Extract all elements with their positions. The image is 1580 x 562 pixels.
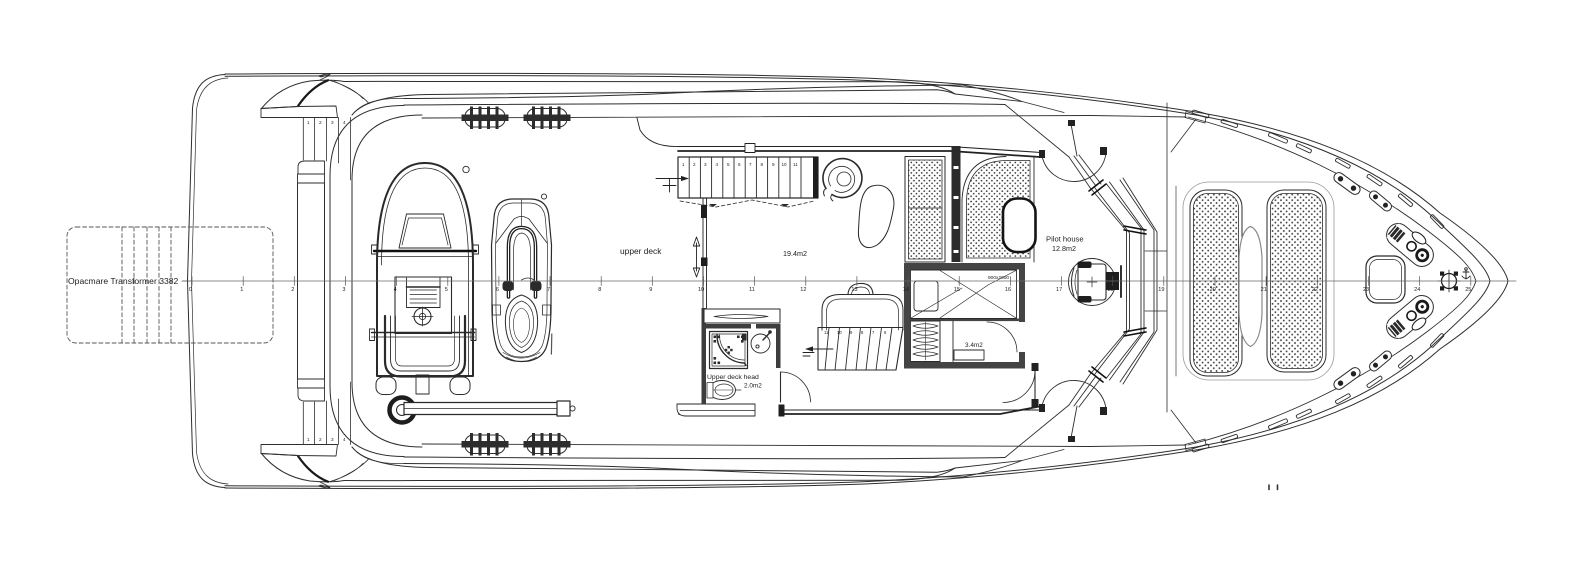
svg-text:2.0m2: 2.0m2 [744,383,762,390]
svg-text:16: 16 [1005,287,1011,293]
svg-text:7: 7 [749,162,752,167]
svg-text:19: 19 [1158,287,1164,293]
svg-text:7: 7 [547,287,550,293]
svg-text:5: 5 [727,162,730,167]
svg-text:15: 15 [954,287,960,293]
svg-text:3: 3 [704,162,707,167]
svg-text:10: 10 [837,330,842,335]
svg-text:17: 17 [1056,287,1062,293]
svg-text:6: 6 [884,330,887,335]
svg-text:12: 12 [800,287,806,293]
svg-text:21: 21 [1261,287,1267,293]
svg-text:14: 14 [903,287,909,293]
svg-text:3.4m2: 3.4m2 [965,342,983,349]
svg-text:0: 0 [189,287,192,293]
svg-text:12.8m2: 12.8m2 [1052,244,1076,253]
svg-text:upper deck: upper deck [620,246,662,256]
svg-text:9: 9 [772,162,775,167]
svg-text:4: 4 [716,162,719,167]
svg-text:2: 2 [291,287,294,293]
svg-text:3: 3 [331,120,334,125]
svg-text:2: 2 [319,437,322,442]
svg-text:19.4m2: 19.4m2 [783,249,807,258]
svg-text:Pilot house: Pilot house [1046,235,1084,244]
svg-text:4: 4 [394,287,397,293]
svg-text:Upper deck head: Upper deck head [707,374,759,381]
svg-text:1: 1 [307,437,310,442]
svg-text:8: 8 [861,330,864,335]
svg-text:2: 2 [319,120,322,125]
svg-text:3: 3 [331,437,334,442]
svg-text:18: 18 [1107,287,1113,293]
svg-text:9: 9 [850,330,853,335]
svg-text:9: 9 [649,287,652,293]
svg-text:4: 4 [343,120,346,125]
svg-text:6: 6 [496,287,499,293]
svg-text:7: 7 [872,330,875,335]
svg-text:23: 23 [1363,287,1369,293]
svg-text:6: 6 [738,162,741,167]
svg-text:10: 10 [782,162,788,167]
svg-text:1: 1 [682,162,685,167]
svg-text:5: 5 [445,287,448,293]
svg-text:20: 20 [1210,287,1216,293]
svg-text:24: 24 [1414,287,1420,293]
svg-text:900x2000: 900x2000 [988,275,1009,281]
svg-text:22: 22 [1312,287,1318,293]
svg-text:1: 1 [307,120,310,125]
svg-text:25: 25 [1465,287,1471,293]
svg-text:3: 3 [342,287,345,293]
svg-text:4: 4 [343,437,346,442]
svg-text:8: 8 [761,162,764,167]
svg-text:8: 8 [598,287,601,293]
svg-text:Opacmare Transformer 3382: Opacmare Transformer 3382 [68,276,179,286]
svg-text:11: 11 [749,287,755,293]
svg-text:13: 13 [851,287,857,293]
svg-text:11: 11 [824,330,829,335]
svg-text:10: 10 [698,287,704,293]
svg-text:11: 11 [793,162,798,167]
svg-text:2: 2 [693,162,696,167]
svg-text:1: 1 [240,287,243,293]
